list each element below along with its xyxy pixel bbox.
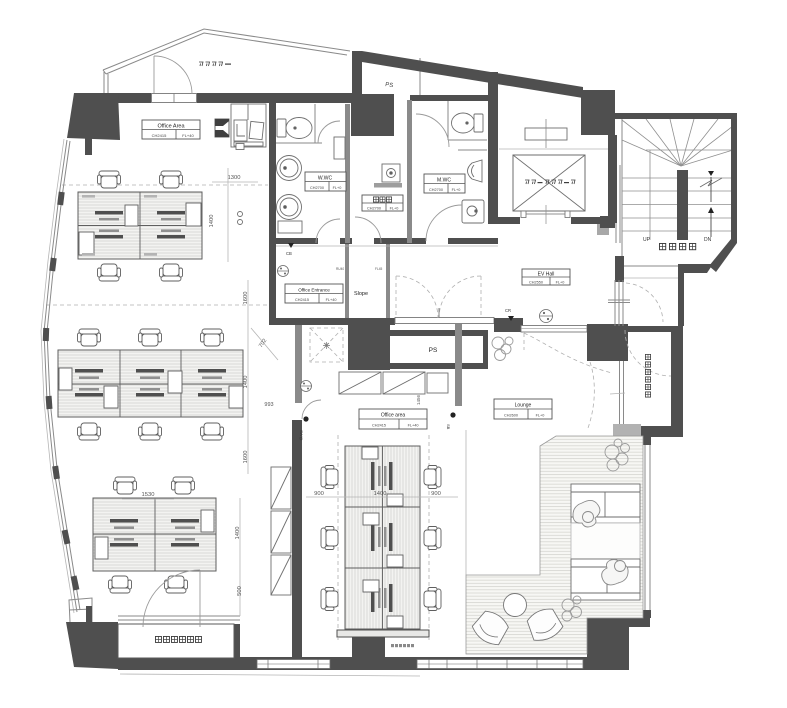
svg-text:Slope: Slope: [354, 291, 368, 297]
svg-text:PS: PS: [429, 347, 438, 354]
svg-text:CH2415: CH2415: [152, 133, 167, 138]
svg-text:UP: UP: [643, 237, 651, 243]
svg-text:CB: CB: [286, 251, 292, 256]
svg-text:CH2415: CH2415: [295, 298, 309, 302]
svg-text:SW@: SW@: [299, 430, 304, 441]
svg-text:1300: 1300: [228, 175, 241, 181]
svg-text:FL+0: FL+0: [536, 414, 545, 418]
svg-text:900: 900: [431, 491, 441, 497]
svg-text:1600: 1600: [243, 292, 249, 305]
svg-text:500: 500: [237, 586, 243, 596]
svg-text:900: 900: [314, 491, 324, 497]
svg-text:1400: 1400: [243, 376, 249, 389]
svg-text:FL+40: FL+40: [182, 133, 194, 138]
svg-text:Office Area: Office Area: [157, 124, 185, 130]
svg-text:Lounge: Lounge: [515, 403, 532, 409]
svg-text:1400: 1400: [209, 215, 215, 228]
svg-text:FL+40: FL+40: [408, 424, 419, 428]
svg-text:CH2415: CH2415: [372, 424, 386, 428]
svg-text:FL+0: FL+0: [390, 206, 399, 210]
svg-text:FL+0: FL+0: [556, 281, 565, 285]
svg-text:1400: 1400: [235, 527, 241, 540]
svg-text:CH2700: CH2700: [367, 206, 381, 210]
svg-text:993: 993: [264, 402, 273, 408]
svg-text:FL+40: FL+40: [326, 298, 337, 302]
svg-text:CH2700: CH2700: [310, 186, 324, 190]
svg-text:DN: DN: [704, 237, 712, 243]
svg-text:CR: CR: [505, 308, 511, 313]
svg-text:Office area: Office area: [381, 413, 406, 419]
svg-text:FL+0: FL+0: [333, 186, 342, 190]
svg-text:1400: 1400: [374, 491, 387, 497]
svg-text:1600: 1600: [243, 451, 249, 464]
svg-text:Office Entrance: Office Entrance: [298, 288, 330, 293]
svg-text:FL45: FL45: [375, 267, 382, 271]
svg-text:SB: SB: [446, 424, 451, 430]
svg-text:CH2700: CH2700: [429, 188, 443, 192]
svg-text:M.WC: M.WC: [437, 178, 451, 184]
svg-text:EV Hall: EV Hall: [538, 272, 555, 278]
svg-text:FL+0: FL+0: [452, 188, 461, 192]
svg-text:RU40: RU40: [336, 267, 344, 271]
svg-text:1456: 1456: [416, 394, 421, 405]
svg-text:W.WC: W.WC: [318, 176, 333, 182]
svg-text:CH2600: CH2600: [504, 414, 518, 418]
svg-text:CH2550: CH2550: [529, 281, 543, 285]
svg-text:PS: PS: [385, 82, 394, 89]
svg-text:1530: 1530: [142, 492, 155, 498]
